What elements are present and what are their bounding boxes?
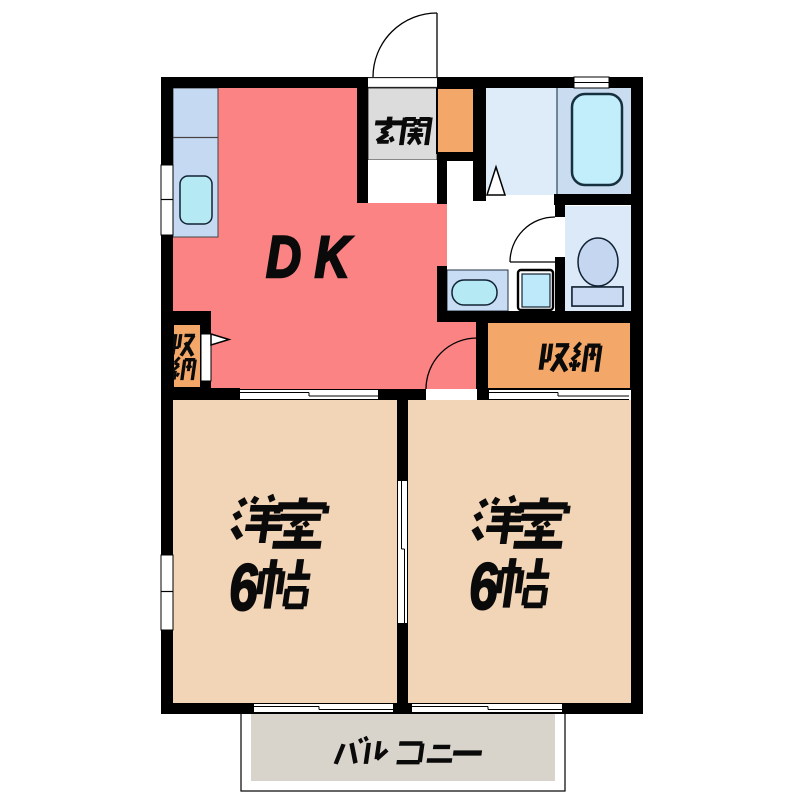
svg-text:DK: DK <box>266 226 363 290</box>
svg-text:6: 6 <box>229 550 259 625</box>
svg-text:6: 6 <box>469 549 499 624</box>
